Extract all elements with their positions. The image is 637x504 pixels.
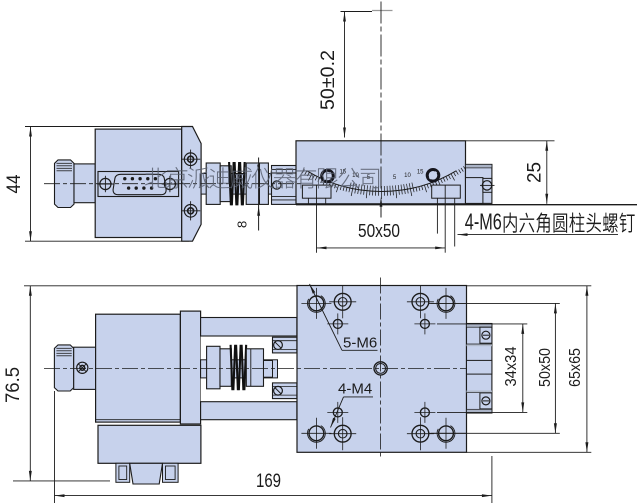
svg-text:34x34: 34x34 [503, 346, 520, 386]
svg-text:8: 8 [235, 221, 250, 228]
svg-text:50±0.2: 50±0.2 [318, 50, 339, 110]
svg-text:65x65: 65x65 [567, 348, 584, 387]
svg-text:76.5: 76.5 [3, 367, 24, 403]
svg-text:50x50: 50x50 [358, 220, 400, 241]
svg-text:4-M4: 4-M4 [338, 381, 372, 398]
svg-text:4-M6: 4-M6 [465, 209, 502, 235]
svg-text:169: 169 [256, 471, 281, 492]
svg-text:5-M6: 5-M6 [343, 335, 377, 352]
svg-text:15: 15 [417, 170, 424, 176]
svg-text:50x50: 50x50 [537, 348, 554, 387]
svg-text:44: 44 [4, 174, 25, 193]
svg-text:10: 10 [404, 173, 411, 179]
svg-text:25: 25 [525, 162, 546, 183]
